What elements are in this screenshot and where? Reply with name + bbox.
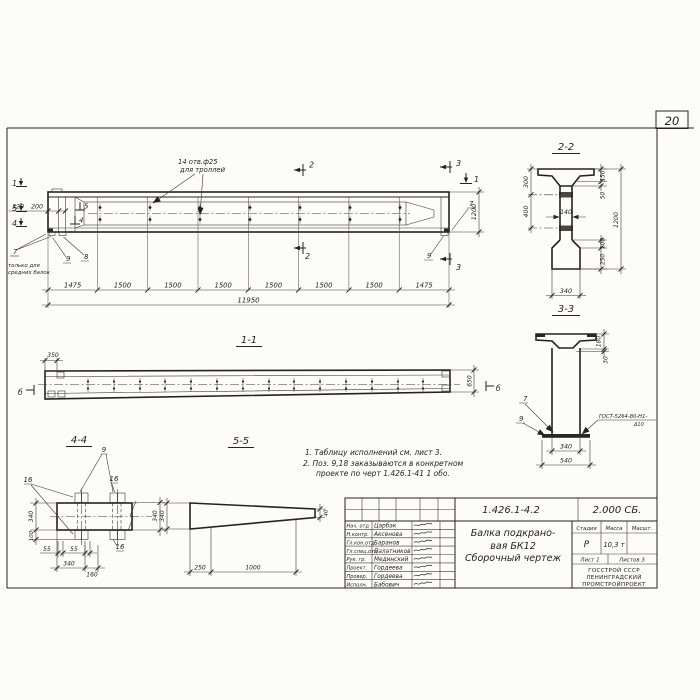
note-line1: 1. Таблицу исполнений см. лист 3.	[305, 448, 442, 457]
dim-segment: 1500	[365, 282, 382, 290]
elevation-view: 14 отв.ф25 для троллей 1475 1500 1500 15…	[8, 158, 484, 308]
svg-text:1: 1	[474, 175, 479, 184]
note-line2: 2. Поз. 9,18 заказываются в конкретном	[303, 459, 464, 468]
svg-text:7: 7	[469, 200, 474, 208]
section-title: 1-1	[241, 335, 257, 346]
dim-total: 11950	[237, 297, 260, 305]
dim-55a: 55	[43, 546, 51, 553]
section-1-1: 1-1 350 650 б б	[18, 335, 501, 399]
signature-mark	[414, 532, 432, 535]
dim-340: 340	[560, 444, 572, 451]
dim-40: 40	[324, 509, 330, 516]
section-3-3: 3-3 180 30 7 9 ГОСТ-5264-80-Н1- Δ10 340 …	[516, 304, 656, 469]
dim-160: 160	[86, 572, 98, 579]
note-line3: проекте по черт 1.426.1-41 1 обо.	[316, 469, 450, 478]
dim-100: 100	[601, 238, 607, 249]
org-line2: ЛЕНИНГРАДСКИЙ	[586, 574, 641, 581]
weld-note-line2: Δ10	[633, 422, 644, 428]
dim-340-bottom: 340	[63, 561, 75, 568]
callout-9: 9	[102, 446, 107, 454]
dim-150: 150	[601, 170, 607, 181]
beam-cut-marks: 5 4	[70, 202, 89, 225]
dim-segment: 1500	[315, 282, 332, 290]
svg-text:2: 2	[309, 161, 314, 170]
signature-mark	[414, 565, 432, 568]
signature-mark	[414, 523, 432, 526]
callout-9: 9	[519, 415, 524, 423]
sheets-label: Листов 3	[618, 558, 645, 564]
mass-header: Масса	[606, 526, 623, 532]
weld-note-line1: ГОСТ-5264-80-Н1-	[599, 414, 647, 420]
dim-340-left: 340	[28, 511, 35, 523]
dim-340-right: 340	[152, 510, 159, 522]
dim-segment: 1500	[265, 282, 282, 290]
cut-mark-3: 3 3	[440, 159, 461, 272]
left-note-line1: только для	[8, 263, 41, 269]
svg-text:Гл.кон.отд: Гл.кон.отд	[347, 540, 375, 546]
svg-text:2: 2	[305, 252, 310, 261]
stage-value: Р	[584, 540, 590, 550]
holes-note-line1: 14 отв.ф25	[178, 158, 218, 166]
section-4-4: 4-4 9 16 16 16 340 100 340 55 55	[24, 435, 165, 579]
doc-number: 1.426.1-4.2	[482, 505, 540, 516]
dim-400: 400	[523, 205, 530, 217]
stage-header: Стадия	[576, 526, 597, 532]
section-title: 4-4	[71, 435, 87, 446]
callout-7: 7	[523, 395, 528, 403]
cut-mark-2: 2 2	[294, 161, 314, 262]
svg-text:Исполн.: Исполн.	[347, 582, 368, 588]
left-note-line2: средних балок	[8, 270, 51, 276]
dim-350: 350	[47, 352, 59, 359]
svg-text:Провер.: Провер.	[347, 574, 368, 580]
svg-text:Гордеева: Гордеева	[374, 574, 403, 580]
dim-segment: 1475	[415, 282, 432, 290]
dim-segment: 1500	[164, 282, 181, 290]
callout-16: 16	[24, 476, 33, 484]
drawing-title-line3: Сборочный чертеж	[465, 553, 562, 564]
dim-250: 250	[601, 254, 607, 265]
svg-text:4: 4	[79, 217, 83, 225]
section-title: 2-2	[558, 142, 574, 153]
svg-text:3: 3	[456, 159, 461, 168]
callout-16: 16	[116, 543, 125, 551]
svg-text:Н.контр.: Н.контр.	[347, 532, 369, 538]
signature-mark	[414, 574, 432, 577]
dim-650: 650	[467, 375, 474, 387]
signature-mark	[414, 557, 432, 560]
svg-text:Гордеева: Гордеева	[374, 566, 403, 572]
dim-340: 340	[560, 287, 572, 295]
svg-text:3: 3	[456, 263, 461, 272]
section-title: 5-5	[233, 436, 249, 447]
title-block: 1.426.1-4.2 2.000 СБ. Нач. отдЦарбак Н.к…	[345, 498, 657, 588]
drawing-title-line2: вая БК12	[490, 541, 536, 552]
dim-140: 140	[560, 209, 572, 216]
svg-text:Бабович: Бабович	[374, 582, 400, 588]
svg-text:Нач. отд: Нач. отд	[347, 524, 370, 530]
mass-value: 10,3 т	[603, 541, 625, 549]
signature-mark	[414, 582, 432, 585]
dim-340: 340	[159, 510, 166, 522]
svg-text:б: б	[496, 384, 501, 393]
scale-header: Масшт.	[632, 526, 652, 532]
svg-text:5: 5	[84, 203, 89, 211]
svg-text:9: 9	[66, 255, 71, 263]
holes-note-line2: для троллей	[179, 166, 226, 174]
dim-1000: 1000	[245, 565, 260, 572]
staff-rows: Нач. отдЦарбак Н.контр.Аксенова Гл.кон.о…	[347, 523, 433, 588]
doc-code: 2.000 СБ.	[593, 505, 642, 516]
svg-text:Мединский: Мединский	[374, 557, 409, 563]
dim-100: 100	[29, 530, 35, 541]
notes: 1. Таблицу исполнений см. лист 3. 2. Поз…	[303, 448, 464, 478]
plan-holes	[87, 378, 424, 392]
section-2-2: 2-2 300 400 150 50 100 250 1200 140	[523, 142, 626, 299]
dim-250: 250	[194, 565, 206, 572]
section-5-5: 5-5 340 40 250 1000	[159, 436, 330, 576]
drawing-canvas: 20 14 отв.ф25 для троллей 1475 15	[0, 0, 700, 700]
dim-segment: 1500	[215, 282, 232, 290]
dim-1200: 1200	[613, 212, 620, 228]
dim-30: 30	[604, 356, 610, 364]
org-line1: ГОССТРОЙ СССР	[588, 567, 640, 574]
dim-200: 200	[31, 204, 43, 211]
signature-mark	[414, 549, 432, 552]
drawing-sheet: 20 14 отв.ф25 для троллей 1475 15	[0, 0, 700, 700]
dim-55b: 55	[70, 546, 78, 553]
svg-text:Палатников: Палатников	[374, 549, 411, 555]
callout-16: 16	[110, 475, 119, 483]
svg-text:Аксенова: Аксенова	[373, 532, 403, 538]
dim-50: 50	[601, 192, 607, 200]
signature-mark	[414, 540, 432, 543]
svg-text:Проект.: Проект.	[347, 566, 368, 572]
sheet-label: Лист 1	[579, 558, 599, 564]
svg-text:Рук. гр.: Рук. гр.	[347, 557, 367, 563]
dim-segment: 1475	[64, 282, 81, 290]
sheet-number: 20	[665, 114, 680, 128]
elevation-right-callouts: 7 9	[424, 200, 476, 260]
drawing-title-line1: Балка подкрано-	[471, 528, 556, 539]
cut-mark-1: 1	[460, 173, 479, 184]
svg-text:Баранов: Баранов	[374, 540, 400, 546]
dim-180: 180	[597, 336, 603, 347]
dim-segment: 1500	[114, 282, 131, 290]
org-line3: ПРОМСТРОЙПРОЕКТ	[582, 581, 646, 588]
dim-540: 540	[560, 458, 572, 465]
dim-300: 300	[523, 176, 530, 188]
svg-text:б: б	[18, 388, 23, 397]
section-title: 3-3	[558, 304, 574, 315]
svg-text:8: 8	[84, 253, 89, 261]
svg-text:Царбак: Царбак	[374, 524, 397, 530]
elevation-left-callouts: 7 9 8 только для средних балок	[8, 234, 89, 276]
